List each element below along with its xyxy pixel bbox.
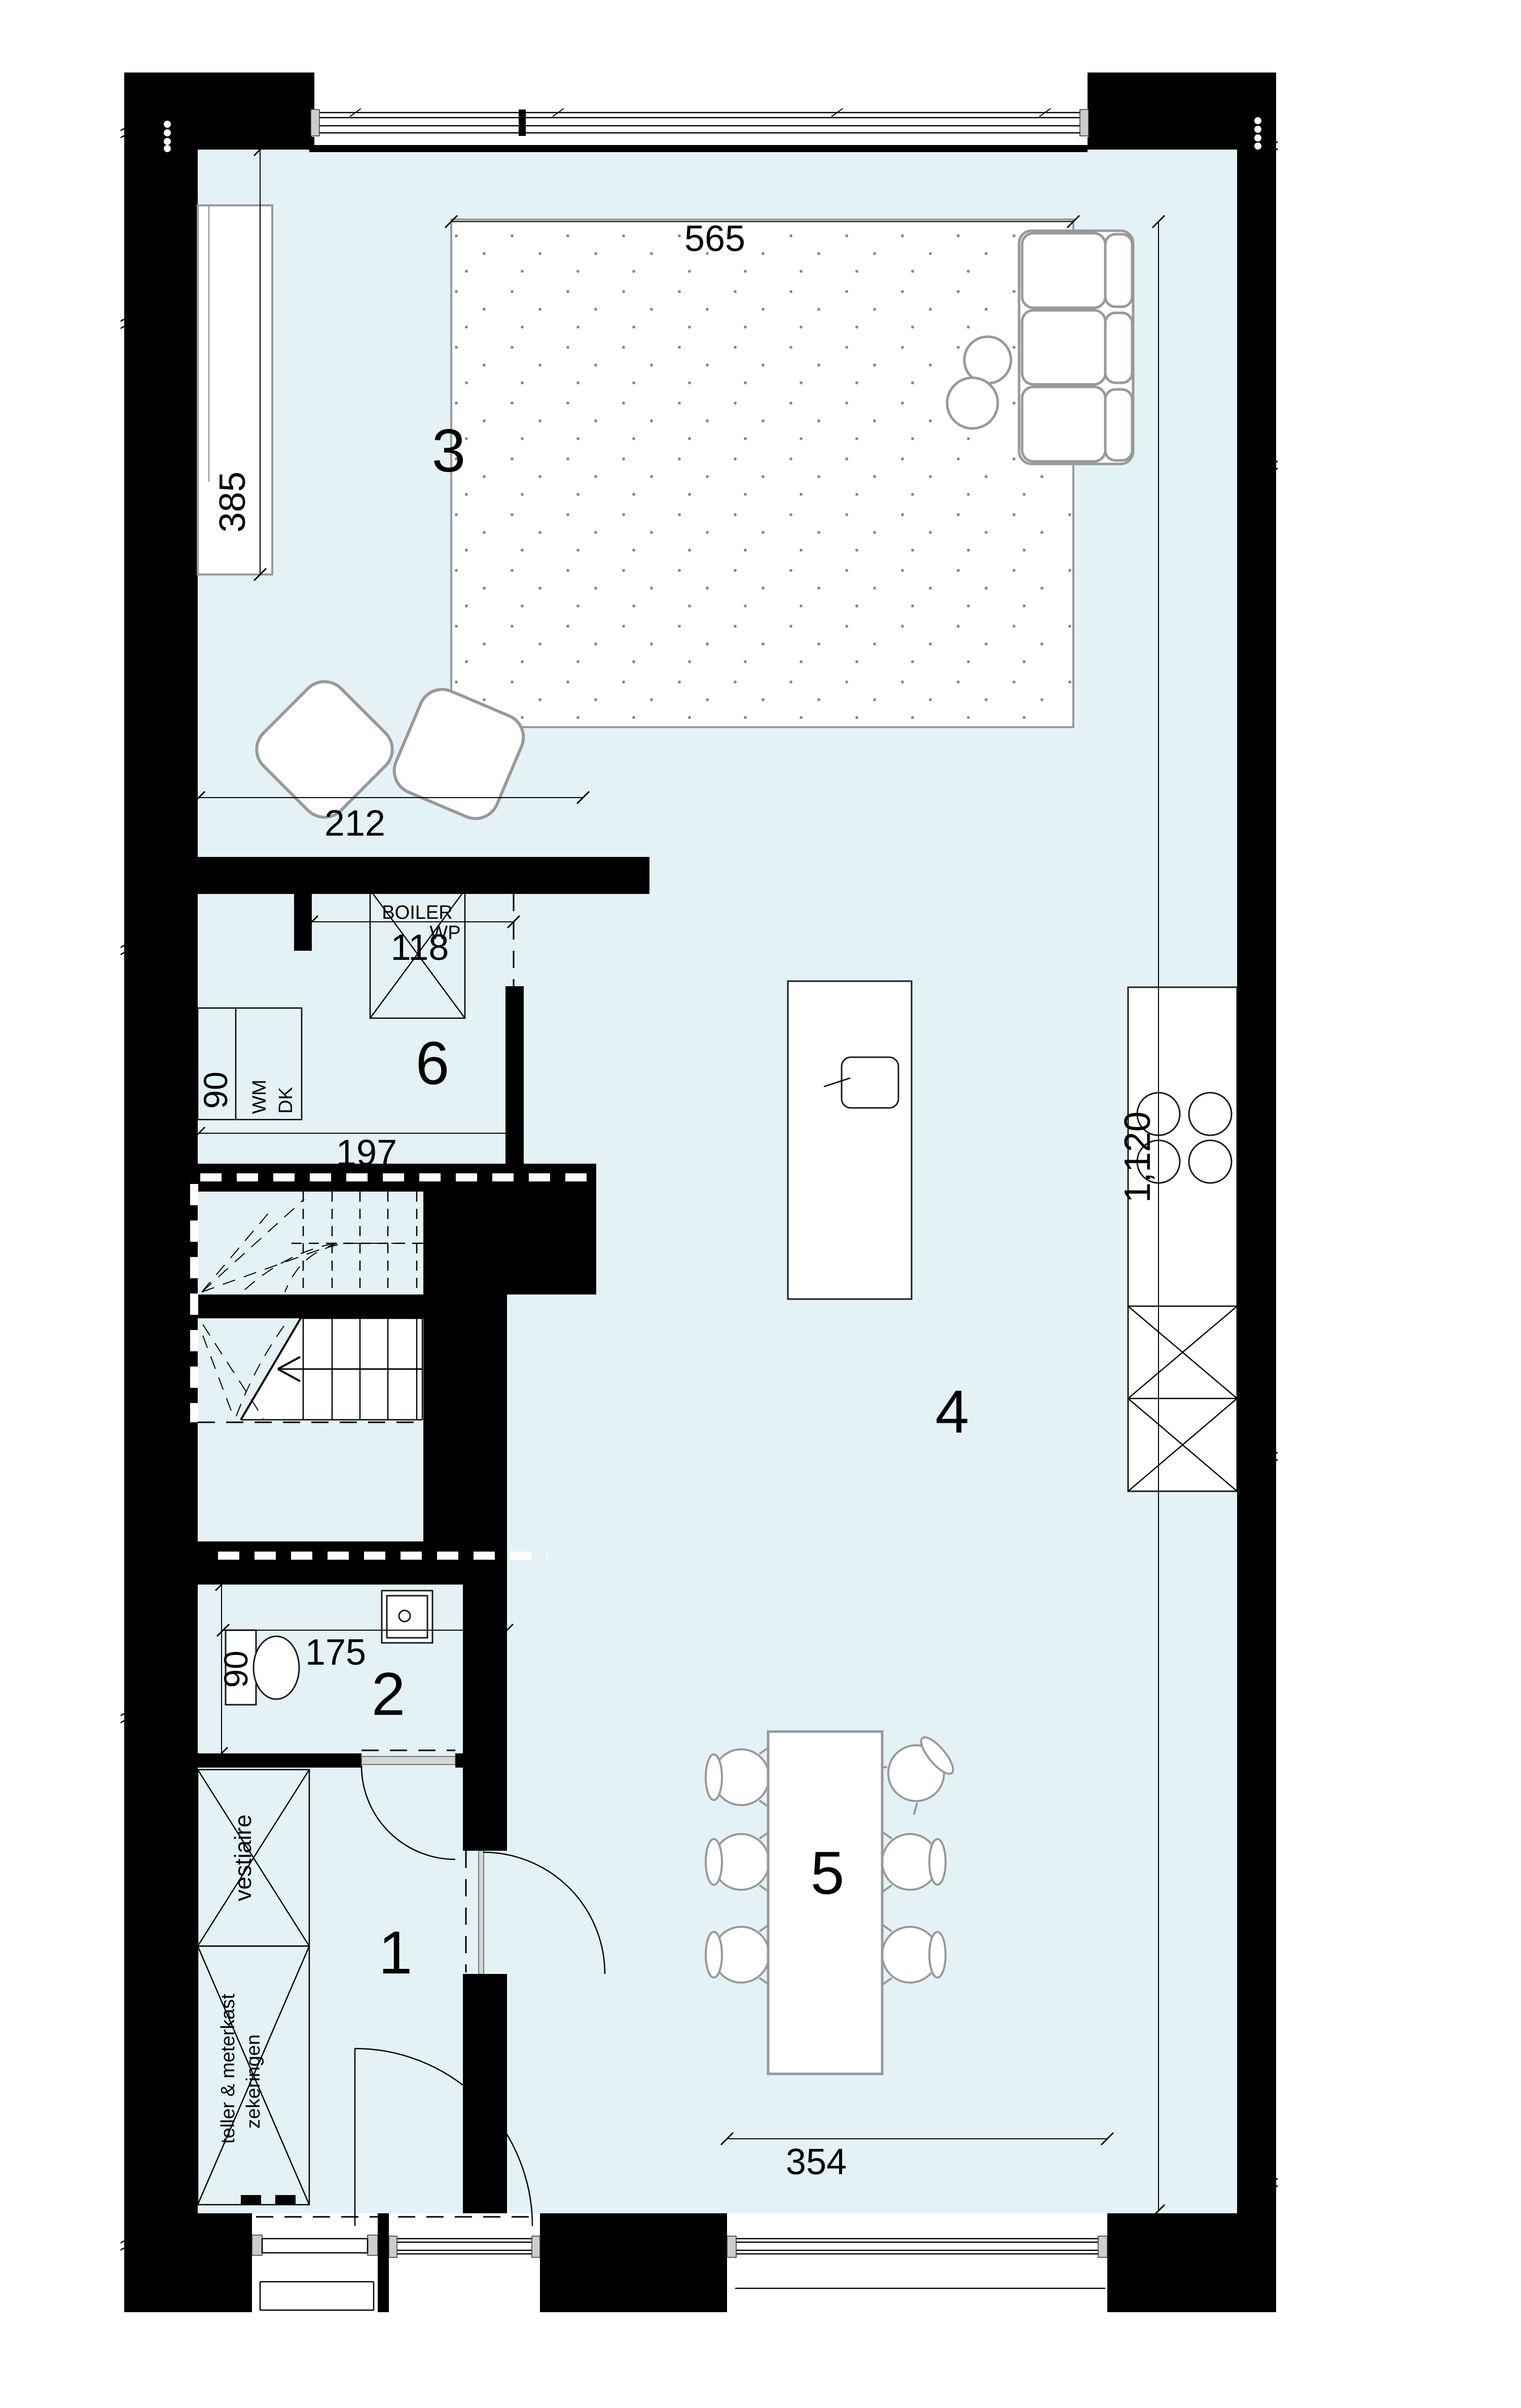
front-door-leaf-closed <box>262 2239 368 2253</box>
label-wardrobe: vestiaire <box>230 1814 256 1901</box>
burner <box>1189 1093 1232 1135</box>
wall-bottom-mid1 <box>378 2213 389 2312</box>
wall-top-inner-face <box>309 145 1088 152</box>
wall-left <box>124 73 198 2312</box>
wall-toilet-bottom-left <box>198 1753 361 1768</box>
pouf <box>964 337 1011 383</box>
wall-bottom-right <box>1107 2213 1276 2312</box>
wall-boiler-stub <box>294 894 312 951</box>
label-meter2: zekeringen <box>243 2034 264 2129</box>
wall-under-living <box>125 857 649 894</box>
room-label-utility: 6 <box>416 1029 450 1097</box>
dim-cabinet: 385 <box>212 472 253 532</box>
window-top <box>311 109 1089 137</box>
burner <box>1189 1140 1232 1183</box>
room-label-toilet: 2 <box>372 1660 406 1728</box>
floor-plan: 3 4 5 6 2 1 565 385 212 118 WP BOILER 19… <box>0 0 1521 2408</box>
label-dryer: DK <box>275 1087 297 1114</box>
room-label-dining: 5 <box>811 1839 845 1907</box>
wall-stair-mid <box>198 1295 423 1318</box>
pouf <box>947 378 998 428</box>
island-sink <box>842 1057 898 1108</box>
toilet-door-leaf <box>361 1756 455 1765</box>
label-heatpump: WP <box>429 922 460 944</box>
toilet-bowl <box>253 1636 299 1699</box>
room-label-living: 3 <box>432 417 466 485</box>
wall-right <box>1237 150 1276 2213</box>
kitchen-counter <box>1128 987 1237 1491</box>
label-boiler: BOILER <box>382 902 452 923</box>
window-mullion <box>519 110 526 136</box>
room-label-kitchen: 4 <box>935 1378 969 1446</box>
room-label-hall: 1 <box>379 1919 413 1987</box>
label-meter1: teller & meterkast <box>218 1994 239 2144</box>
wall-utility-stub2 <box>505 1019 524 1164</box>
wall-utility-stub1 <box>505 986 524 1019</box>
glass-door-leaf <box>479 1851 484 1974</box>
wall-bottom-mid2 <box>540 2213 727 2312</box>
wall-partition-upper <box>463 1585 507 1851</box>
front-door-jamb-left <box>252 2235 262 2255</box>
wall-stair-right <box>423 1295 507 1585</box>
wall-top-right <box>1088 73 1276 150</box>
sink-drain <box>399 1610 410 1622</box>
dim-chairs: 212 <box>324 803 385 844</box>
dim-toilet: 175 <box>305 1632 366 1673</box>
dim-utility: 197 <box>336 1133 397 1173</box>
dim-interior: 1,120 <box>1117 1111 1158 1203</box>
wall-toilet-top <box>125 1541 507 1585</box>
wall-toilet-bottom-right <box>455 1753 507 1768</box>
dim-toilet-depth: 90 <box>217 1650 255 1687</box>
dim-window: 354 <box>786 2142 847 2182</box>
dim-utility-depth: 90 <box>197 1071 234 1108</box>
front-door-jamb-right <box>368 2235 378 2255</box>
kitchen-island <box>788 981 912 1299</box>
wall-bottom-left <box>124 2213 252 2312</box>
window-jamb-right <box>1080 110 1089 136</box>
wall-partition-lower <box>463 1974 507 2213</box>
dim-rug: 565 <box>684 219 745 259</box>
label-washer: WM <box>249 1080 270 1114</box>
window-jamb-left <box>311 110 319 136</box>
